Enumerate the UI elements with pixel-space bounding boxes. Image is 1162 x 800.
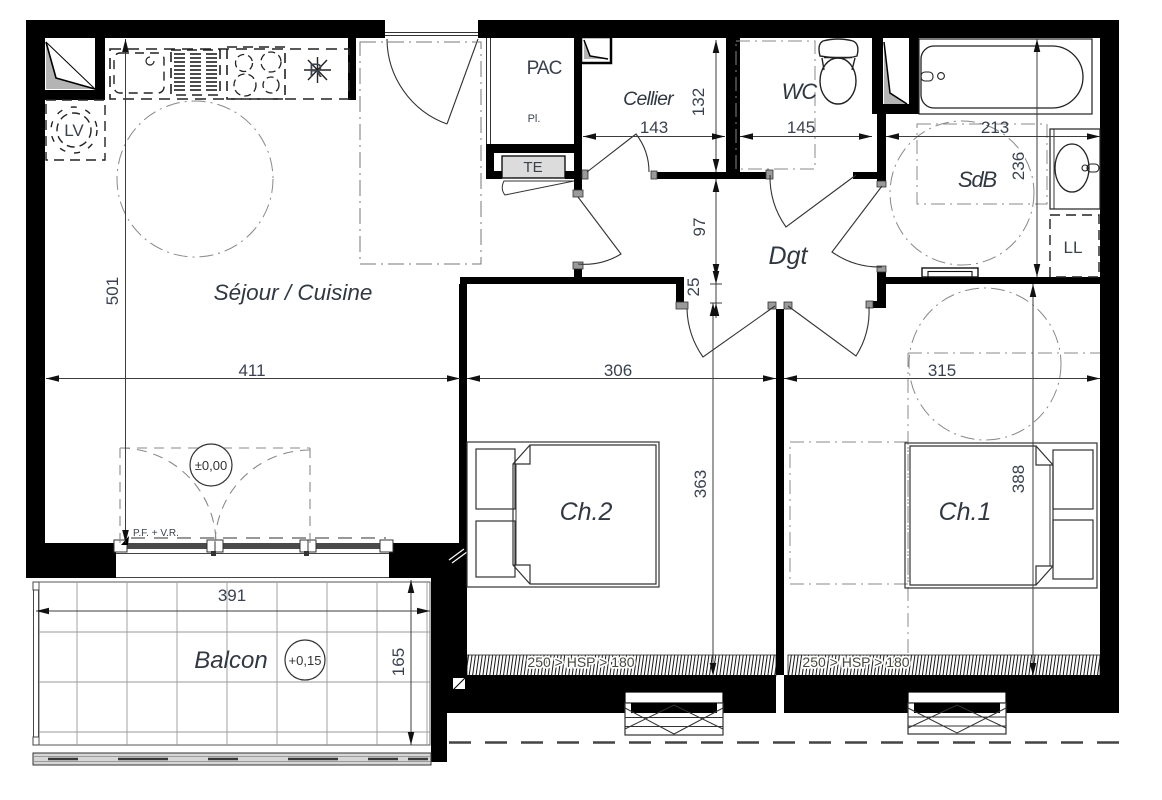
svg-text:Séjour / Cuisine: Séjour / Cuisine (214, 280, 373, 305)
svg-text:25: 25 (684, 278, 703, 297)
svg-text:+0,15: +0,15 (289, 653, 322, 668)
svg-text:250 > HSP > 180: 250 > HSP > 180 (802, 654, 909, 670)
svg-text:363: 363 (691, 470, 710, 498)
svg-text:Dgt: Dgt (769, 242, 809, 270)
svg-text:213: 213 (981, 118, 1009, 137)
svg-text:143: 143 (640, 118, 668, 137)
svg-text:LV: LV (64, 121, 84, 140)
svg-text:Ch.1: Ch.1 (939, 498, 992, 526)
svg-text:391: 391 (218, 586, 246, 605)
svg-text:SdB: SdB (958, 167, 997, 192)
svg-text:97: 97 (690, 218, 709, 237)
svg-text:236: 236 (1009, 152, 1028, 180)
svg-text:501: 501 (103, 277, 122, 305)
svg-text:Ch.2: Ch.2 (560, 498, 613, 526)
svg-text:±0,00: ±0,00 (195, 458, 227, 473)
svg-text:LL: LL (1064, 238, 1083, 257)
svg-text:411: 411 (238, 361, 265, 380)
svg-text:132: 132 (689, 88, 708, 116)
svg-text:TE: TE (523, 159, 542, 176)
svg-text:WC: WC (782, 79, 818, 104)
svg-text:Pl.: Pl. (528, 113, 541, 125)
svg-text:315: 315 (928, 361, 956, 380)
svg-text:145: 145 (787, 118, 815, 137)
svg-text:Balcon: Balcon (194, 647, 267, 674)
svg-text:Cellier: Cellier (623, 88, 675, 110)
svg-text:306: 306 (604, 361, 632, 380)
svg-text:P.F. + V.R.: P.F. + V.R. (133, 528, 179, 539)
svg-text:R: R (309, 61, 323, 82)
svg-text:165: 165 (389, 648, 408, 676)
svg-text:250 > HSP > 180: 250 > HSP > 180 (527, 654, 634, 670)
svg-text:388: 388 (1009, 465, 1028, 493)
svg-text:PAC: PAC (527, 58, 562, 79)
